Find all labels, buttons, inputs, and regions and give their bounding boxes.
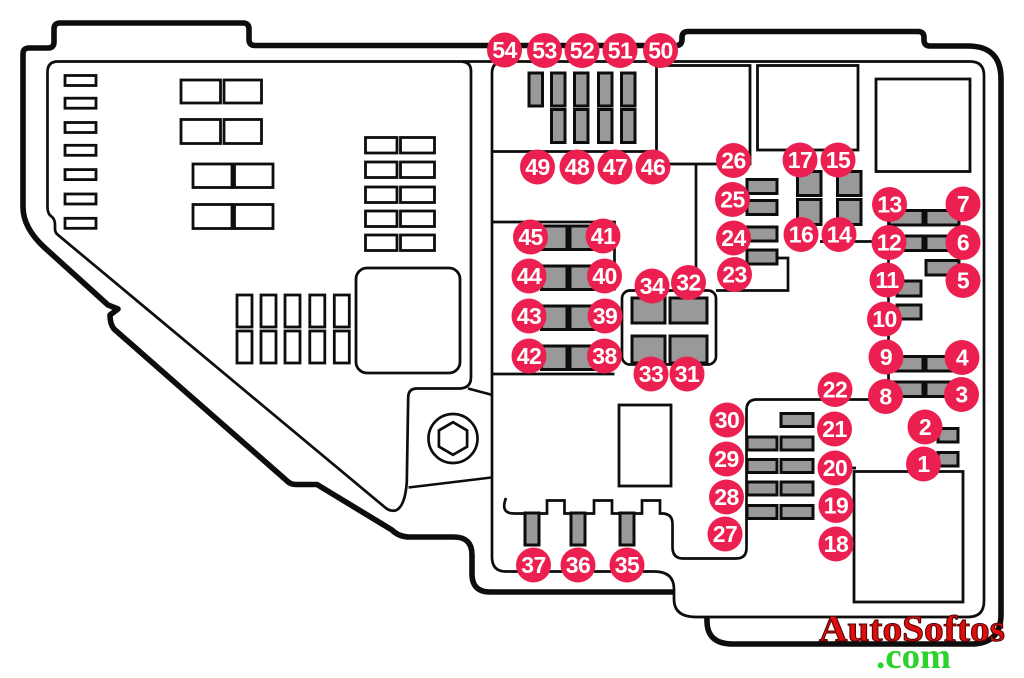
svg-text:6: 6 <box>957 230 969 256</box>
svg-text:23: 23 <box>722 262 747 288</box>
svg-text:48: 48 <box>565 154 590 180</box>
svg-text:13: 13 <box>877 192 902 218</box>
svg-text:36: 36 <box>566 552 591 578</box>
svg-text:46: 46 <box>641 154 666 180</box>
svg-text:44: 44 <box>517 263 542 289</box>
svg-text:47: 47 <box>603 154 628 180</box>
svg-text:11: 11 <box>875 267 899 293</box>
svg-text:12: 12 <box>877 230 902 256</box>
svg-text:8: 8 <box>879 384 892 410</box>
svg-text:30: 30 <box>715 407 740 433</box>
svg-text:33: 33 <box>639 361 664 387</box>
svg-text:22: 22 <box>823 377 848 403</box>
svg-text:26: 26 <box>721 148 746 174</box>
svg-text:5: 5 <box>957 268 970 294</box>
svg-text:20: 20 <box>823 455 848 481</box>
svg-text:29: 29 <box>714 446 739 472</box>
svg-text:25: 25 <box>720 187 745 213</box>
svg-text:45: 45 <box>518 224 543 250</box>
svg-text:19: 19 <box>824 493 849 519</box>
svg-text:40: 40 <box>592 263 617 289</box>
svg-text:35: 35 <box>615 552 640 578</box>
svg-text:34: 34 <box>640 273 665 299</box>
svg-text:43: 43 <box>517 303 542 329</box>
svg-text:37: 37 <box>521 552 546 578</box>
svg-text:54: 54 <box>492 37 517 63</box>
svg-text:18: 18 <box>824 531 849 557</box>
svg-text:10: 10 <box>872 306 897 332</box>
svg-text:14: 14 <box>827 222 852 248</box>
svg-text:17: 17 <box>788 147 813 173</box>
svg-text:39: 39 <box>593 303 618 329</box>
svg-text:4: 4 <box>956 345 969 371</box>
svg-text:52: 52 <box>570 38 595 64</box>
svg-text:32: 32 <box>676 270 701 296</box>
svg-text:21: 21 <box>822 416 847 442</box>
svg-text:50: 50 <box>648 38 673 64</box>
svg-text:15: 15 <box>826 147 851 173</box>
svg-text:28: 28 <box>714 484 739 510</box>
svg-text:24: 24 <box>721 225 746 251</box>
svg-text:51: 51 <box>608 38 633 64</box>
svg-text:38: 38 <box>592 343 617 369</box>
svg-text:3: 3 <box>955 382 967 408</box>
svg-text:49: 49 <box>525 154 550 180</box>
svg-text:2: 2 <box>919 414 931 440</box>
svg-text:9: 9 <box>880 344 892 370</box>
svg-text:1: 1 <box>917 451 930 477</box>
svg-text:42: 42 <box>517 343 542 369</box>
svg-text:41: 41 <box>591 223 616 249</box>
svg-text:27: 27 <box>713 521 738 547</box>
svg-text:31: 31 <box>675 361 700 387</box>
svg-text:.com: .com <box>876 636 951 676</box>
svg-text:53: 53 <box>532 38 557 64</box>
svg-text:7: 7 <box>957 191 969 217</box>
svg-text:16: 16 <box>789 222 814 248</box>
